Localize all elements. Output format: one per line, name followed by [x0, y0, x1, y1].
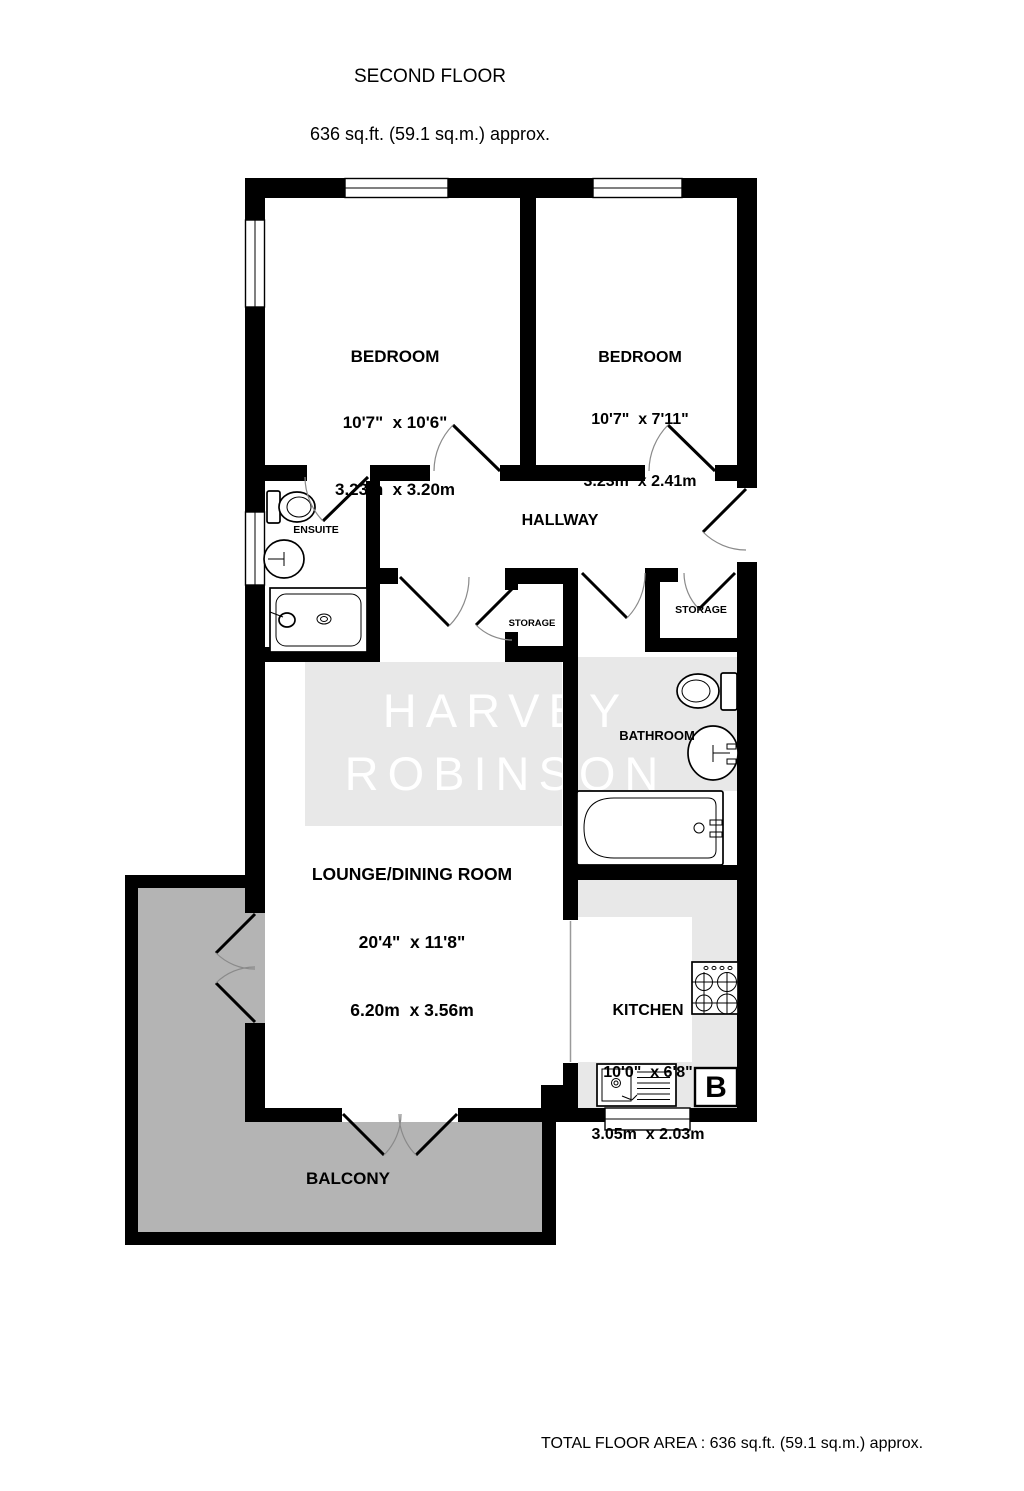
storage-left-label: STORAGE: [509, 618, 556, 630]
room-dim-metric: 6.20m x 3.56m: [312, 999, 512, 1022]
plan-title-block: SECOND FLOOR 636 sq.ft. (59.1 sq.m.) app…: [310, 30, 550, 181]
watermark-line1: HARVEY: [383, 684, 629, 737]
window-bedroom2-top: [593, 179, 682, 198]
balcony-label: BALCONY: [306, 1168, 390, 1190]
total-floor-area: TOTAL FLOOR AREA : 636 sq.ft. (59.1 sq.m…: [541, 1435, 923, 1453]
floor-area-subtitle: 636 sq.ft. (59.1 sq.m.) approx.: [310, 124, 550, 145]
room-name: KITCHEN: [592, 1001, 705, 1022]
room-dim-metric: 3.23m x 2.41m: [584, 472, 697, 493]
ensuite-sink-icon: [264, 540, 304, 578]
room-dim-imperial: 10'7" x 7'11": [584, 410, 697, 431]
plan-footer: TOTAL FLOOR AREA : 636 sq.ft. (59.1 sq.m…: [541, 1399, 923, 1491]
room-name: BEDROOM: [584, 348, 697, 369]
floor-title: SECOND FLOOR: [310, 66, 550, 88]
door-bathroom: [582, 573, 645, 618]
bedroom2-label: BEDROOM 10'7" x 7'11" 3.23m x 2.41m: [584, 306, 697, 535]
window-bedroom1-left: [246, 220, 265, 307]
room-dim-imperial: 20'4" x 11'8": [312, 931, 512, 954]
room-dim-metric: 3.23m x 3.20m: [335, 479, 455, 501]
kitchen-label: KITCHEN 10'0" x 6'8" 3.05m x 2.03m: [592, 959, 705, 1188]
hallway-label: HALLWAY: [522, 511, 599, 532]
bathroom-label: BATHROOM: [619, 728, 695, 745]
bathroom-sink-icon: [688, 726, 738, 780]
bathtub-icon: [577, 791, 723, 865]
bedroom1-label: BEDROOM 10'7" x 10'6" 3.23m x 3.20m: [335, 302, 455, 545]
shower-icon: [270, 588, 367, 652]
window-ensuite-left: [246, 512, 265, 585]
room-name: LOUNGE/DINING ROOM: [312, 863, 512, 886]
storage-right-label: STORAGE: [675, 604, 727, 618]
door-entry: [703, 489, 746, 550]
room-dim-metric: 3.05m x 2.03m: [592, 1125, 705, 1146]
room-name: BEDROOM: [335, 346, 455, 368]
balcony-door-opening: [245, 913, 265, 1023]
room-dim-imperial: 10'7" x 10'6": [335, 412, 455, 434]
floorplan-drawing: HARVEY ROBINSON: [0, 0, 1024, 1491]
boiler-label: B: [705, 1070, 727, 1106]
door-lounge: [400, 577, 469, 626]
floorplan-page: HARVEY ROBINSON: [0, 0, 1024, 1491]
bathroom-toilet-icon: [677, 673, 737, 710]
ensuite-label: ENSUITE: [293, 524, 339, 538]
window-bedroom1-top: [345, 179, 448, 198]
room-dim-imperial: 10'0" x 6'8": [592, 1063, 705, 1084]
lounge-label: LOUNGE/DINING ROOM 20'4" x 11'8" 6.20m x…: [312, 817, 512, 1067]
